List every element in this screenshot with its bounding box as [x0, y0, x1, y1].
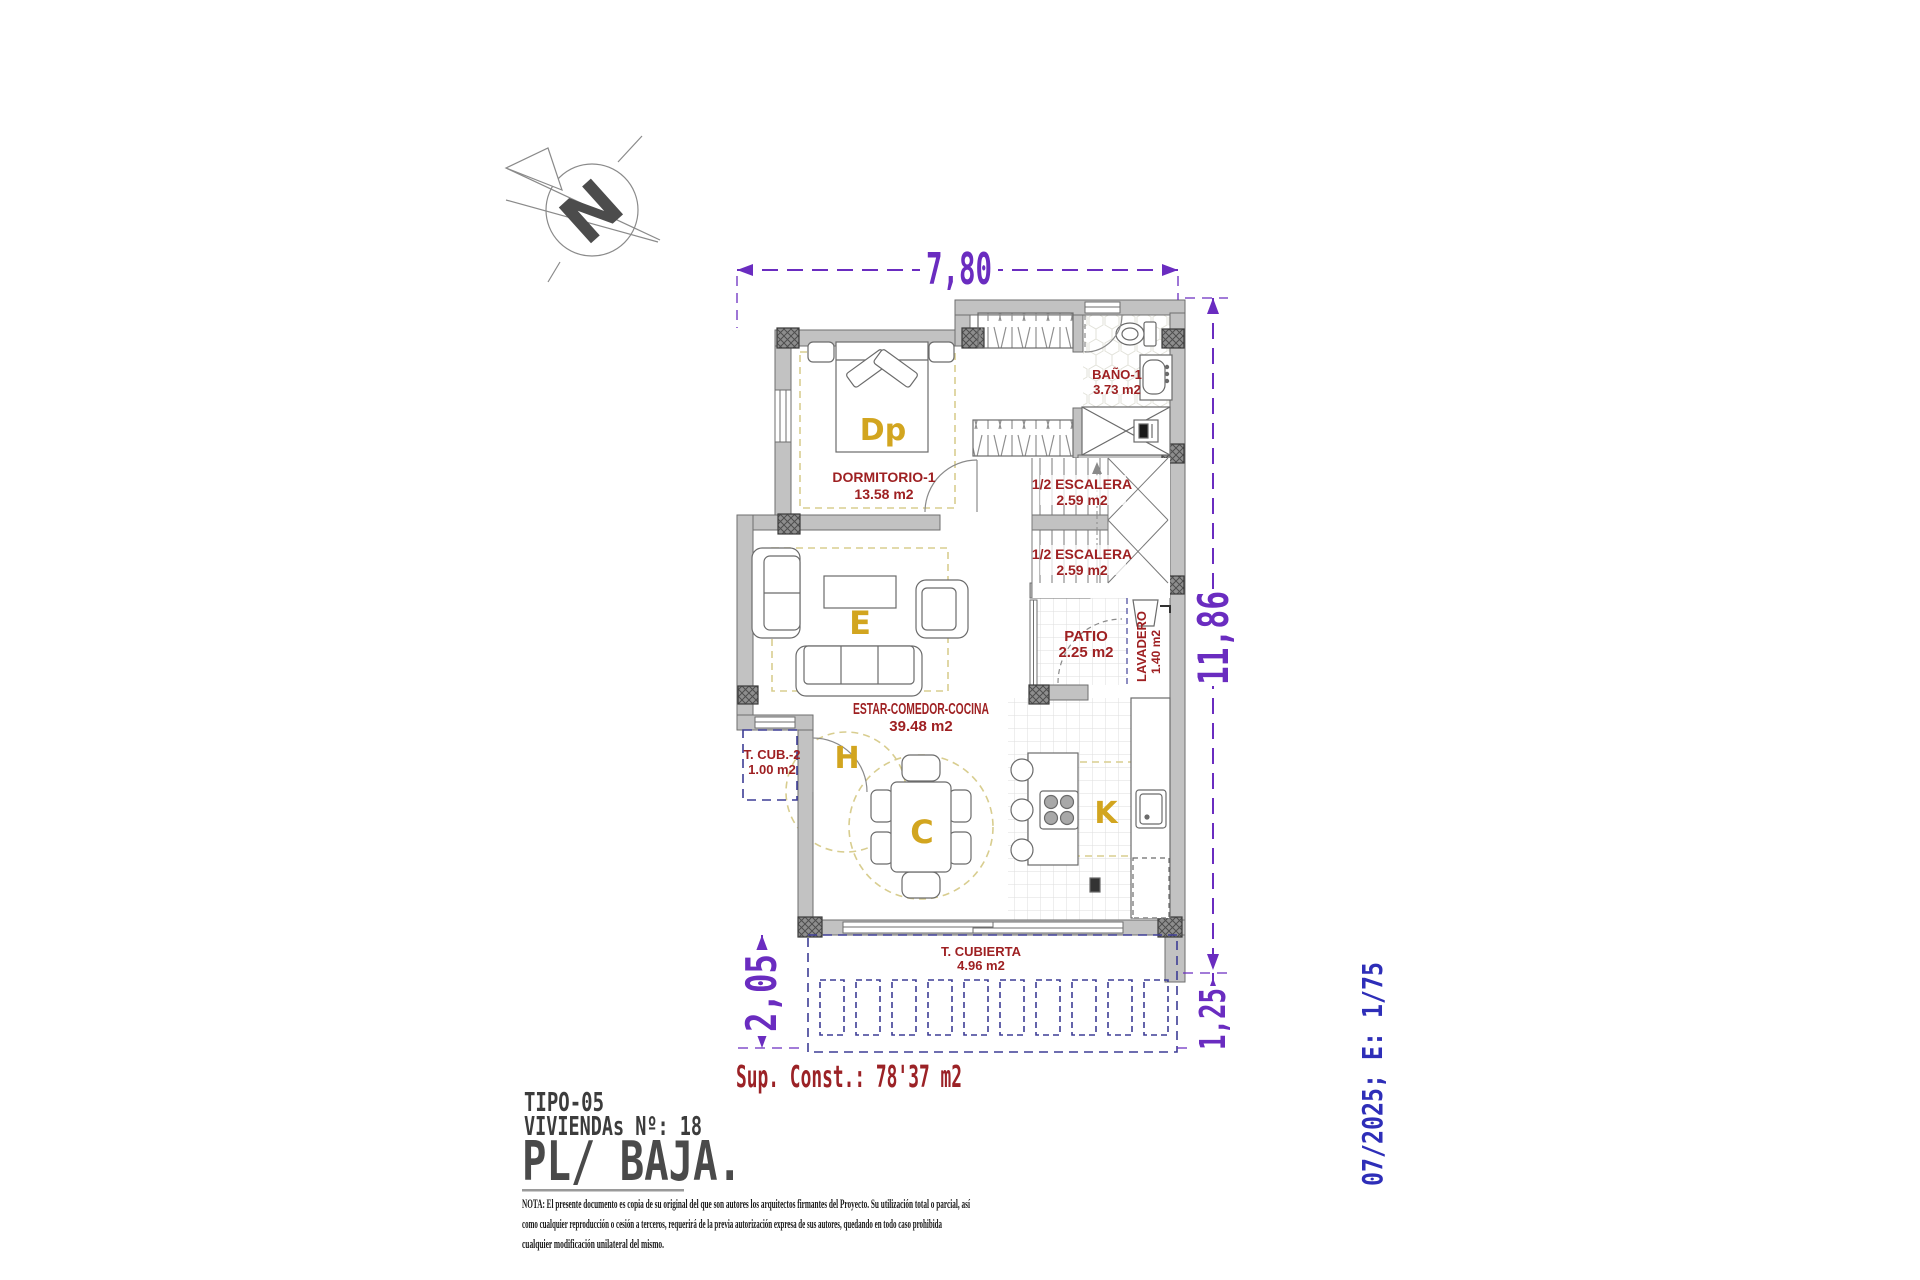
- wardrobe-bottom: [973, 420, 1073, 456]
- wardrobes: [973, 313, 1073, 456]
- terrace-column: [1165, 935, 1185, 982]
- dining-chair: [949, 832, 971, 864]
- room-bano-area: 3.73 m2: [1093, 382, 1141, 397]
- sink-vanity: [1140, 355, 1172, 400]
- room-tcub2-name: T. CUB.-2: [743, 747, 800, 762]
- dining-chair: [902, 872, 940, 898]
- note-line2: como cualquier reproducción o cesión a t…: [522, 1216, 942, 1231]
- room-estar-name: ESTAR-COMEDOR-COCINA: [853, 701, 989, 718]
- zone-letter-k: K: [1094, 796, 1119, 831]
- room-patio-area: 2.25 m2: [1058, 644, 1113, 661]
- date-scale-text: 07/2025; E: 1/75: [1356, 962, 1389, 1186]
- patio-window: [1030, 600, 1037, 685]
- dim-top-text: 7,80: [926, 244, 992, 295]
- dining-chair: [871, 790, 893, 822]
- room-dormitorio-name: DORMITORIO-1: [832, 469, 935, 485]
- room-lavadero-name: LAVADERO: [1134, 611, 1149, 682]
- column: [738, 686, 758, 704]
- sup-const-text: Sup. Const.: 78'37 m2: [736, 1060, 962, 1095]
- title-planta: PL/ BAJA.: [522, 1130, 742, 1193]
- blueprint-page: 7,80 11,86 2,05 1,25 N DORMITORIO-1 13.5…: [0, 0, 1920, 1280]
- cooktop: [1040, 791, 1078, 829]
- room-dormitorio-area: 13.58 m2: [854, 486, 913, 502]
- dining-chair: [902, 755, 940, 781]
- room-escalera-b-name: 1/2 ESCALERA: [1032, 546, 1132, 562]
- column: [777, 328, 799, 348]
- nightstand-left: [808, 342, 834, 362]
- room-patio-name: PATIO: [1064, 628, 1108, 645]
- footer-note: NOTA: El presente documento es copia de …: [522, 1196, 970, 1251]
- wall-left-living: [737, 515, 753, 715]
- room-tcubierta-area: 4.96 m2: [957, 958, 1005, 973]
- stool: [1011, 839, 1033, 861]
- north-arrow: N: [506, 136, 660, 282]
- sliding-glass-door: [843, 922, 1123, 933]
- room-escalera-a-area: 2.59 m2: [1056, 492, 1108, 508]
- column: [1158, 917, 1182, 937]
- shower: [1082, 407, 1170, 455]
- stool: [1011, 759, 1033, 781]
- kitchen-detail: [1090, 878, 1100, 892]
- bedroom-window: [775, 390, 791, 442]
- zone-letter-c: C: [910, 813, 933, 851]
- pergola-beams: [820, 980, 1168, 1035]
- room-tcubierta-name: T. CUBIERTA: [941, 944, 1022, 959]
- zone-letter-dp: Dp: [860, 413, 906, 448]
- wall-bath-partition-a: [1073, 315, 1083, 352]
- room-estar-area: 39.48 m2: [889, 718, 952, 735]
- title-underline: [522, 1189, 684, 1192]
- north-letter: N: [546, 165, 639, 259]
- kitchen-sink: [1136, 790, 1166, 828]
- zone-letter-h: H: [834, 741, 859, 776]
- room-lavadero-area: 1.40 m2: [1149, 630, 1163, 674]
- wardrobe-top: [978, 313, 1073, 348]
- room-tcub2-area: 1.00 m2: [748, 762, 796, 777]
- bedroom-door: [925, 460, 977, 512]
- dining-chair: [949, 790, 971, 822]
- column: [1162, 329, 1184, 348]
- note-line1: NOTA: El presente documento es copia de …: [522, 1196, 970, 1211]
- dim-left-text: 2,05: [737, 954, 786, 1032]
- column: [1029, 685, 1049, 704]
- wall-right: [1170, 313, 1185, 935]
- column: [798, 917, 822, 937]
- stool: [1011, 799, 1033, 821]
- room-bano-name: BAÑO-1: [1092, 367, 1142, 382]
- dining-chair: [871, 832, 893, 864]
- dim-right-bottom-text: 1,25: [1193, 988, 1234, 1050]
- room-escalera-a-name: 1/2 ESCALERA: [1032, 476, 1132, 492]
- north-needle: [506, 148, 562, 190]
- appliance-dashed: [1133, 858, 1169, 918]
- title-block: Sup. Const.: 78'37 m2 TIPO-05 VIVIENDAs …: [522, 1060, 962, 1193]
- room-escalera-b-area: 2.59 m2: [1056, 562, 1108, 578]
- toilet: [1116, 322, 1156, 346]
- note-line3: cualquier modificación unilateral del mi…: [522, 1236, 664, 1251]
- zone-letter-e: E: [849, 604, 871, 642]
- entrance-window: [755, 717, 795, 728]
- bathroom-window: [1085, 302, 1120, 313]
- floor-plan-drawing: 7,80 11,86 2,05 1,25 N DORMITORIO-1 13.5…: [0, 0, 1920, 1280]
- nightstand-right: [929, 342, 954, 362]
- wall-bedroom-living: [737, 515, 940, 530]
- dim-right-text: 11,86: [1189, 591, 1238, 685]
- column: [778, 514, 800, 534]
